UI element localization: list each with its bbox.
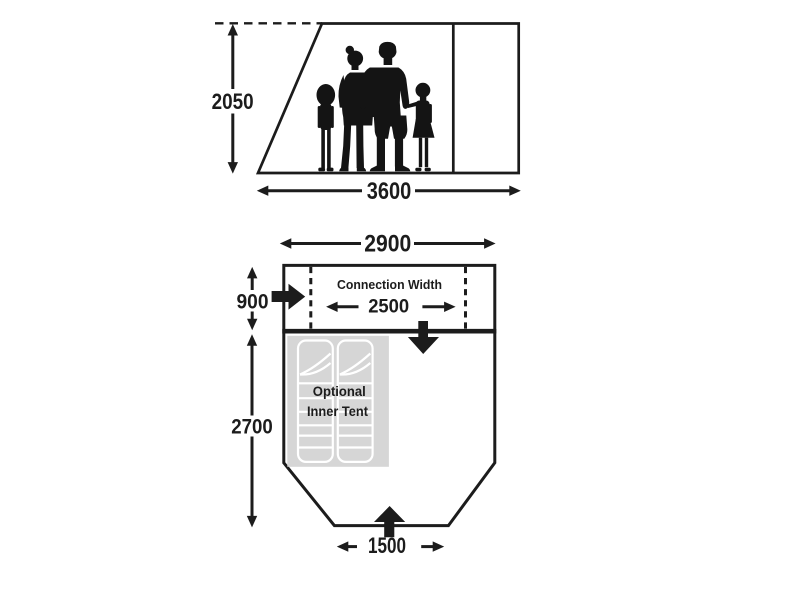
svg-text:Connection Width: Connection Width	[337, 277, 442, 292]
svg-text:2900: 2900	[364, 230, 411, 257]
svg-text:Optional: Optional	[313, 383, 366, 399]
svg-text:1500: 1500	[368, 533, 406, 558]
svg-text:2050: 2050	[212, 89, 254, 114]
svg-text:3600: 3600	[367, 178, 412, 205]
svg-text:2500: 2500	[368, 297, 409, 318]
svg-text:900: 900	[237, 290, 269, 313]
svg-text:2700: 2700	[231, 415, 273, 439]
svg-text:Inner Tent: Inner Tent	[307, 403, 368, 419]
